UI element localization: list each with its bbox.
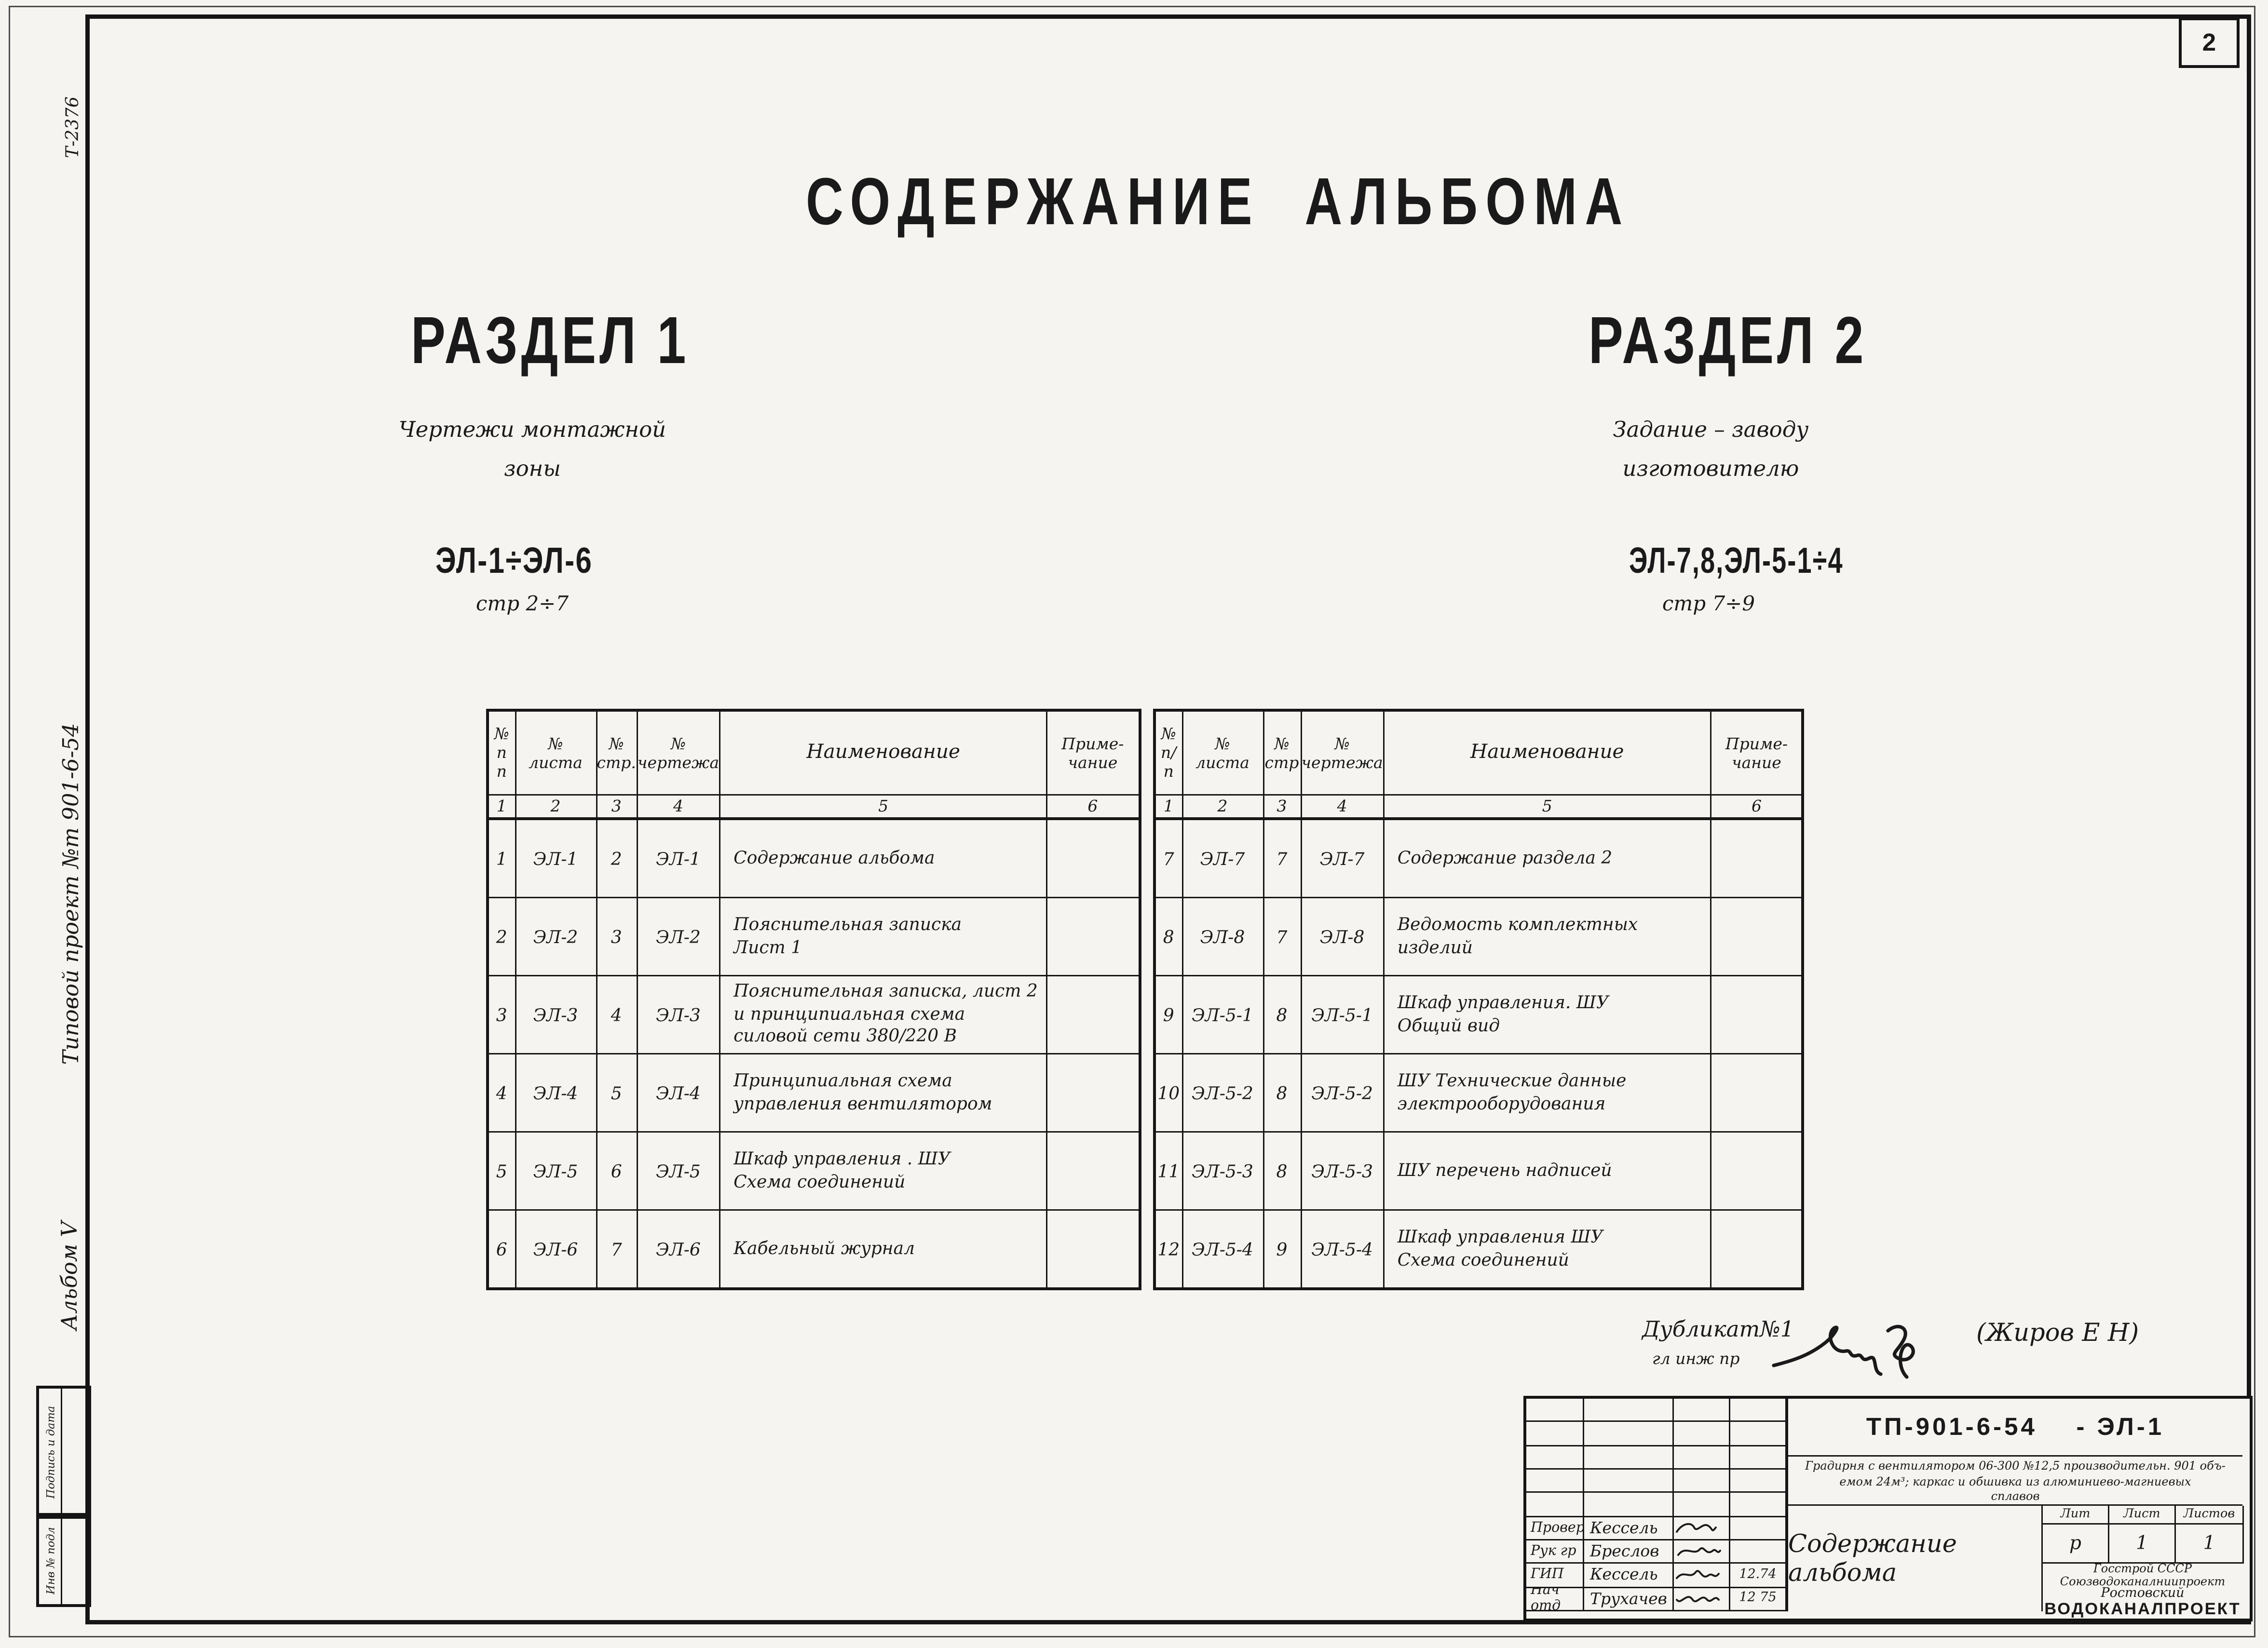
lit-value-listov: 1	[2176, 1525, 2244, 1564]
cell-sheet: ЭЛ-4	[515, 1054, 596, 1132]
revision-cell	[1584, 1446, 1674, 1470]
cell-page: 2	[596, 819, 637, 898]
cell-page: 6	[596, 1132, 637, 1210]
cell-name: Кабельный журнал	[720, 1210, 1047, 1289]
column-number: 4	[637, 795, 720, 819]
stamp-blank-cell	[62, 1389, 88, 1516]
section2-subtitle-line2: изготовителю	[1591, 450, 1830, 489]
stamp-box-inventory: Инв № подл	[36, 1513, 91, 1607]
revision-cell	[1730, 1493, 1787, 1517]
cell-name: Содержание альбома	[720, 819, 1047, 898]
cell-drawing: ЭЛ-5-2	[1301, 1054, 1384, 1132]
revision-cell	[1584, 1493, 1674, 1517]
cell-note	[1047, 898, 1140, 976]
cell-drawing: ЭЛ-2	[637, 898, 720, 976]
column-header: №чертежа	[1301, 710, 1384, 795]
cell-drawing: ЭЛ-5-4	[1301, 1210, 1384, 1289]
cell-sheet: ЭЛ-6	[515, 1210, 596, 1289]
section1-heading-text: РАЗДЕЛ 1	[411, 301, 689, 379]
org-line1: Госстрой СССР	[2043, 1564, 2242, 1576]
lit-value-lit: р	[2043, 1525, 2109, 1564]
section2-heading: РАЗДЕЛ 2	[1589, 301, 1945, 379]
signature-role: Рук гр	[1526, 1540, 1584, 1564]
column-number: 4	[1301, 795, 1384, 819]
stamp-label-cell: Подпись и дата	[39, 1389, 62, 1516]
margin-inventory-code: Т-2376	[62, 96, 82, 158]
table-row: 6ЭЛ-67ЭЛ-6Кабельный журнал	[488, 1210, 1140, 1289]
table-row: 10ЭЛ-5-28ЭЛ-5-2ШУ Технические данныеэлек…	[1154, 1054, 1803, 1132]
cell-page: 3	[596, 898, 637, 976]
lit-header-listov: Листов	[2176, 1506, 2244, 1525]
contents-table: №п п№листа№стр.№чертежаНаименованиеПриме…	[486, 709, 1141, 1290]
revision-cell	[1674, 1493, 1730, 1517]
cell-name: Шкаф управления. ШУОбщий вид	[1384, 976, 1711, 1054]
cell-note	[1711, 898, 1803, 976]
section1-subtitle-line2: зоны	[391, 450, 674, 489]
cell-drawing: ЭЛ-8	[1301, 898, 1384, 976]
column-header: Наименование	[720, 710, 1047, 795]
lit-value-list: 1	[2109, 1525, 2176, 1564]
revision-cell	[1730, 1422, 1787, 1446]
revision-cell	[1674, 1422, 1730, 1446]
stamp-blank-cell	[62, 1516, 88, 1604]
signature-name: Кессель	[1584, 1564, 1674, 1588]
title-block-lit-table: Лит Лист Листов р 1 1	[2041, 1506, 2242, 1564]
page-title-text: СОДЕРЖАНИЕ АЛЬБОМА	[806, 162, 1630, 240]
cell-drawing: ЭЛ-4	[637, 1054, 720, 1132]
table-row: 9ЭЛ-5-18ЭЛ-5-1Шкаф управления. ШУОбщий в…	[1154, 976, 1803, 1054]
section1-pages: стр 2÷7	[428, 593, 616, 616]
cell-drawing: ЭЛ-6	[637, 1210, 720, 1289]
section2-code: ЭЛ-7,8,ЭЛ-5-1÷4	[1629, 541, 1927, 583]
table-row: 7ЭЛ-77ЭЛ-7Содержание раздела 2	[1154, 819, 1803, 898]
revision-cell	[1674, 1470, 1730, 1493]
signature-icon	[1674, 1517, 1730, 1540]
column-number: 2	[1182, 795, 1263, 819]
cell-note	[1711, 1054, 1803, 1132]
title-block-organization: Госстрой СССР Союзводоканалниипроект Рос…	[2041, 1564, 2242, 1611]
title-block: ПроверКессельРук грБресловГИПКессель12.7…	[1523, 1396, 2253, 1621]
cell-note	[1047, 1132, 1140, 1210]
cell-sheet: ЭЛ-5-2	[1182, 1054, 1263, 1132]
cell-drawing: ЭЛ-5-1	[1301, 976, 1384, 1054]
signature-name: Бреслов	[1584, 1540, 1674, 1564]
lit-header-list: Лист	[2109, 1506, 2176, 1525]
column-number: 6	[1711, 795, 1803, 819]
title-block-description: Градирня с вентилятором 06-300 №12,5 про…	[1787, 1457, 2242, 1506]
table-row: 12ЭЛ-5-49ЭЛ-5-4Шкаф управления ШУСхема с…	[1154, 1210, 1803, 1289]
cell-drawing: ЭЛ-1	[637, 819, 720, 898]
section1-subtitle: Чертежи монтажной зоны	[391, 411, 674, 489]
table-row: 3ЭЛ-34ЭЛ-3Пояснительная записка, лист 2и…	[488, 976, 1140, 1054]
cell-num: 4	[488, 1054, 515, 1132]
cell-sheet: ЭЛ-3	[515, 976, 596, 1054]
revision-cell	[1526, 1493, 1584, 1517]
signature-icon	[1674, 1540, 1730, 1564]
cell-page: 9	[1263, 1210, 1301, 1289]
title-block-doc-code: ТП-901-6-54 - ЭЛ-1	[1787, 1399, 2242, 1457]
signature-date: 12 75	[1730, 1588, 1787, 1611]
description-line2: емом 24м³; каркас и обшивка из алюминиев…	[1788, 1475, 2242, 1490]
annotation-signature-icon	[1768, 1310, 1968, 1383]
margin-project-note: Типовой проект №т 901-6-54	[58, 723, 84, 1065]
cell-num: 8	[1154, 898, 1182, 976]
cell-note	[1047, 1210, 1140, 1289]
margin-album-note: Альбом V	[56, 1221, 82, 1330]
cell-page: 7	[596, 1210, 637, 1289]
revision-cell	[1526, 1422, 1584, 1446]
stamp-inv-label: Инв № подл	[43, 1526, 56, 1594]
column-number: 1	[488, 795, 515, 819]
page-title: СОДЕРЖАНИЕ АЛЬБОМА	[806, 162, 1863, 240]
table-row: 4ЭЛ-45ЭЛ-4Принципиальная схемауправления…	[488, 1054, 1140, 1132]
revision-cell	[1730, 1470, 1787, 1493]
cell-num: 3	[488, 976, 515, 1054]
cell-drawing: ЭЛ-5	[637, 1132, 720, 1210]
signature-icon	[1674, 1564, 1730, 1588]
table-row: 11ЭЛ-5-38ЭЛ-5-3ШУ перечень надписей	[1154, 1132, 1803, 1210]
cell-sheet: ЭЛ-1	[515, 819, 596, 898]
cell-sheet: ЭЛ-7	[1182, 819, 1263, 898]
revision-cell	[1584, 1470, 1674, 1493]
cell-num: 12	[1154, 1210, 1182, 1289]
cell-sheet: ЭЛ-5-3	[1182, 1132, 1263, 1210]
scanned-drawing-sheet: 2 Т-2376 Типовой проект №т 901-6-54 Альб…	[0, 0, 2268, 1648]
cell-name: Содержание раздела 2	[1384, 819, 1711, 898]
cell-page: 7	[1263, 898, 1301, 976]
cell-name: Шкаф управления ШУСхема соединений	[1384, 1210, 1711, 1289]
revision-cell	[1584, 1399, 1674, 1422]
cell-page: 7	[1263, 819, 1301, 898]
contents-table-left: №п п№листа№стр.№чертежаНаименованиеПриме…	[486, 709, 1141, 1290]
section2-pages: стр 7÷9	[1629, 593, 1788, 616]
section1-code-text: ЭЛ-1÷ЭЛ-6	[435, 541, 593, 583]
cell-num: 2	[488, 898, 515, 976]
cell-drawing: ЭЛ-7	[1301, 819, 1384, 898]
cell-num: 11	[1154, 1132, 1182, 1210]
table-row: 8ЭЛ-87ЭЛ-8Ведомость комплектных изделий	[1154, 898, 1803, 976]
signature-role: ГИП	[1526, 1564, 1584, 1588]
column-number: 2	[515, 795, 596, 819]
cell-note	[1711, 976, 1803, 1054]
section2-heading-text: РАЗДЕЛ 2	[1589, 301, 1867, 379]
cell-drawing: ЭЛ-3	[637, 976, 720, 1054]
section1-subtitle-line1: Чертежи монтажной	[391, 411, 674, 450]
table-row: 2ЭЛ-23ЭЛ-2Пояснительная запискаЛист 1	[488, 898, 1140, 976]
column-header: №чертежа	[637, 710, 720, 795]
revision-cell	[1526, 1399, 1584, 1422]
cell-note	[1047, 819, 1140, 898]
title-block-sheet-title: Содержание альбома	[1787, 1506, 2041, 1611]
table-row: 5ЭЛ-56ЭЛ-5Шкаф управления . ШУСхема соед…	[488, 1132, 1140, 1210]
cell-sheet: ЭЛ-8	[1182, 898, 1263, 976]
column-number: 3	[1263, 795, 1301, 819]
cell-sheet: ЭЛ-5-1	[1182, 976, 1263, 1054]
cell-num: 7	[1154, 819, 1182, 898]
revision-cell	[1526, 1446, 1584, 1470]
column-header: №листа	[515, 710, 596, 795]
title-block-signature-grid: ПроверКессельРук грБресловГИПКессель12.7…	[1526, 1399, 1787, 1611]
signature-name: Кессель	[1584, 1517, 1674, 1540]
section1-heading: РАЗДЕЛ 1	[411, 301, 768, 379]
signature-icon	[1674, 1588, 1730, 1611]
column-header: Наименование	[1384, 710, 1711, 795]
column-number: 5	[1384, 795, 1711, 819]
column-number: 5	[720, 795, 1047, 819]
cell-num: 9	[1154, 976, 1182, 1054]
cell-num: 1	[488, 819, 515, 898]
cell-name: Шкаф управления . ШУСхема соединений	[720, 1132, 1047, 1210]
stamp-sign-date-label: Подпись и дата	[43, 1406, 56, 1499]
contents-table: №п/п№листа№стр№чертежаНаименованиеПриме-…	[1153, 709, 1805, 1290]
annotation-role: гл инж пр	[1652, 1350, 1740, 1368]
cell-note	[1711, 819, 1803, 898]
org-line4: ВОДОКАНАЛПРОЕКТ	[2043, 1601, 2242, 1618]
page-number-box: 2	[2179, 17, 2240, 68]
column-header: №п/п	[1154, 710, 1182, 795]
column-number: 3	[596, 795, 637, 819]
cell-sheet: ЭЛ-2	[515, 898, 596, 976]
stamp-label-cell: Инв № подл	[39, 1516, 62, 1604]
revision-cell	[1584, 1422, 1674, 1446]
table-row: 1ЭЛ-12ЭЛ-1Содержание альбома	[488, 819, 1140, 898]
signature-name: Трухачев	[1584, 1588, 1674, 1611]
cell-sheet: ЭЛ-5-4	[1182, 1210, 1263, 1289]
cell-num: 10	[1154, 1054, 1182, 1132]
column-header: №стр	[1263, 710, 1301, 795]
page-number: 2	[2202, 28, 2216, 57]
lit-header-lit: Лит	[2043, 1506, 2109, 1525]
stamp-box-signature-date: Подпись и дата	[36, 1386, 91, 1519]
revision-cell	[1730, 1399, 1787, 1422]
cell-note	[1711, 1210, 1803, 1289]
cell-name: Ведомость комплектных изделий	[1384, 898, 1711, 976]
column-header: Приме-чание	[1047, 710, 1140, 795]
signature-role: Нач отд	[1526, 1588, 1584, 1611]
revision-cell	[1674, 1446, 1730, 1470]
column-header: №п п	[488, 710, 515, 795]
cell-page: 8	[1263, 1054, 1301, 1132]
cell-num: 6	[488, 1210, 515, 1289]
cell-name: Пояснительная записка, лист 2и принципиа…	[720, 976, 1047, 1054]
cell-name: ШУ перечень надписей	[1384, 1132, 1711, 1210]
cell-sheet: ЭЛ-5	[515, 1132, 596, 1210]
cell-note	[1711, 1132, 1803, 1210]
column-header: Приме-чание	[1711, 710, 1803, 795]
column-number: 1	[1154, 795, 1182, 819]
section2-code-text: ЭЛ-7,8,ЭЛ-5-1÷4	[1629, 541, 1844, 583]
section1-code: ЭЛ-1÷ЭЛ-6	[435, 541, 632, 583]
revision-cell	[1730, 1446, 1787, 1470]
cell-page: 8	[1263, 1132, 1301, 1210]
column-header: №листа	[1182, 710, 1263, 795]
contents-table-right: №п/п№листа№стр№чертежаНаименованиеПриме-…	[1153, 709, 1805, 1290]
section2-subtitle: Задание – заводу изготовителю	[1591, 411, 1830, 489]
cell-note	[1047, 976, 1140, 1054]
revision-cell	[1674, 1399, 1730, 1422]
cell-page: 5	[596, 1054, 637, 1132]
cell-page: 8	[1263, 976, 1301, 1054]
annotation-name: (Жиров Е Н)	[1976, 1319, 2139, 1348]
cell-name: Принципиальная схемауправления вентилято…	[720, 1054, 1047, 1132]
cell-name: Пояснительная запискаЛист 1	[720, 898, 1047, 976]
description-line3: сплавов	[1788, 1490, 2242, 1505]
revision-cell	[1526, 1470, 1584, 1493]
signature-date	[1730, 1517, 1787, 1540]
section2-subtitle-line1: Задание – заводу	[1591, 411, 1830, 450]
cell-num: 5	[488, 1132, 515, 1210]
signature-date	[1730, 1540, 1787, 1564]
signature-role: Провер	[1526, 1517, 1584, 1540]
cell-drawing: ЭЛ-5-3	[1301, 1132, 1384, 1210]
cell-name: ШУ Технические данныеэлектрооборудования	[1384, 1054, 1711, 1132]
org-line3: Ростовский	[2043, 1589, 2242, 1601]
cell-page: 4	[596, 976, 637, 1054]
column-number: 6	[1047, 795, 1140, 819]
cell-note	[1047, 1054, 1140, 1132]
signature-date: 12.74	[1730, 1564, 1787, 1588]
description-line1: Градирня с вентилятором 06-300 №12,5 про…	[1788, 1459, 2242, 1475]
column-header: №стр.	[596, 710, 637, 795]
